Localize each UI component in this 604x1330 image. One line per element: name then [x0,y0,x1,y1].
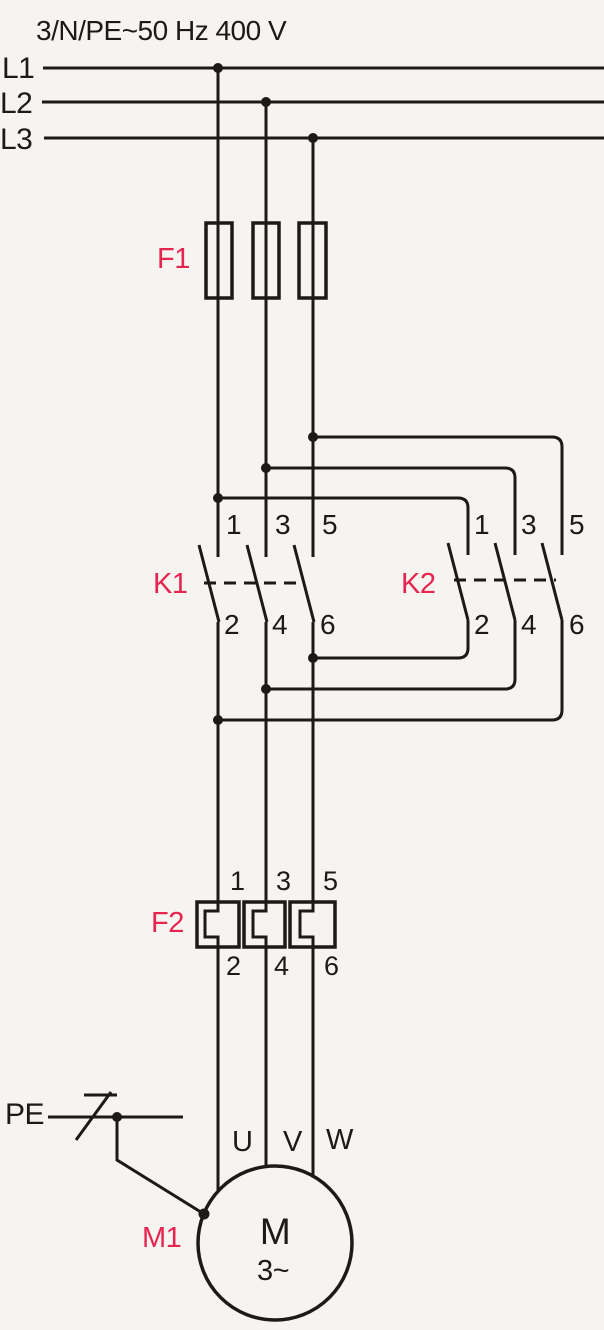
link-k2t6-to-k1t2 [218,620,562,720]
k1-pole3-contact [294,545,314,622]
f2-terminal-2: 2 [226,953,241,980]
supply-title: 3/N/PE~50 Hz 400 V [36,17,286,45]
k1-terminal-3: 3 [275,511,290,539]
wiring-svg [0,0,604,1330]
pe-to-motor-frame [117,1117,204,1214]
pe-frame-dot [199,1209,210,1220]
k2-terminal-6: 6 [569,611,584,639]
k1-terminal-6: 6 [320,611,335,639]
contactor-k1-ref: K1 [153,570,187,599]
f2-terminal-3: 3 [276,868,291,895]
overload-f2-ref: F2 [151,909,184,938]
fuse-f1-ref: F1 [157,245,190,274]
k1-terminal-4: 4 [272,611,287,639]
k2-terminal-5: 5 [569,511,584,539]
motor-m1-ref: M1 [142,1224,181,1253]
phase-conductors-lower [205,622,313,1208]
junction-dot [261,463,271,473]
bus-label-l3: L3 [0,125,32,155]
power-bus [42,63,604,143]
contactor-k2-ref: K2 [401,570,435,599]
junction-dot [308,432,318,442]
bus-label-l2: L2 [0,89,32,119]
f2-terminal-6: 6 [324,953,339,980]
circuit-diagram: 3/N/PE~50 Hz 400 V L1 L2 L3 F1 1 3 5 1 3… [0,0,604,1330]
branch-phase1-to-k2 [218,498,468,555]
k1-terminal-1: 1 [226,511,241,539]
k2-terminal-4: 4 [521,611,536,639]
motor-phase-system: 3~ [257,1257,289,1286]
k2-terminal-1: 1 [474,511,489,539]
motor-terminal-v: V [283,1128,302,1157]
k2-terminal-3: 3 [521,511,536,539]
conductor-u [205,622,218,1208]
phase-conductors-upper [218,68,313,557]
f2-terminal-1: 1 [230,868,245,895]
f2-terminal-5: 5 [323,868,338,895]
bus-label-l1: L1 [2,54,34,84]
k2-terminal-2: 2 [474,611,489,639]
conductor-w [300,622,313,1195]
motor-terminal-w: W [326,1126,353,1155]
k1-terminal-5: 5 [322,511,337,539]
f2-terminal-4: 4 [274,953,289,980]
motor-terminal-u: U [232,1128,252,1157]
contactor-k2-contacts [448,543,562,620]
pe-conductor [48,1092,204,1214]
link-k2t2-to-k1t6 [313,620,468,658]
motor-symbol: M [260,1213,290,1250]
pe-label: PE [5,1100,44,1130]
contactor-k1-contacts [199,545,314,622]
k1-terminal-2: 2 [224,611,239,639]
junction-dot [213,493,223,503]
